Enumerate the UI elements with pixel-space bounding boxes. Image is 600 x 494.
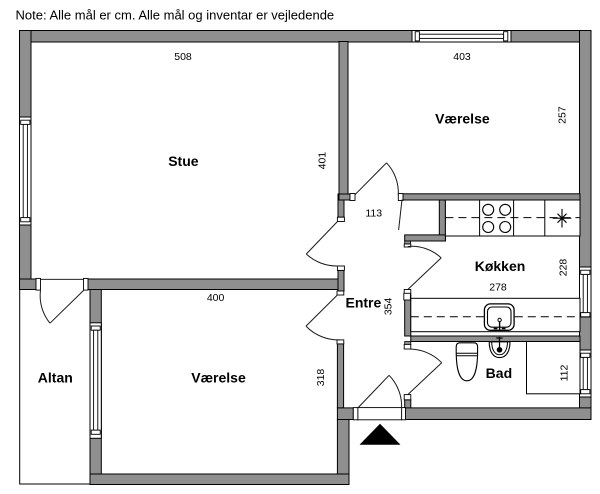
svg-text:278: 278: [489, 281, 507, 293]
svg-text:508: 508: [174, 51, 192, 63]
svg-text:112: 112: [559, 364, 571, 381]
svg-text:Note: Alle mål er cm. Alle mål: Note: Alle mål er cm. Alle mål og invent…: [16, 8, 335, 23]
svg-text:228: 228: [557, 259, 569, 277]
svg-text:403: 403: [453, 51, 471, 63]
svg-text:Stue: Stue: [168, 153, 199, 169]
svg-text:354: 354: [382, 297, 394, 315]
svg-text:400: 400: [207, 292, 225, 304]
svg-text:Altan: Altan: [38, 370, 73, 386]
svg-text:113: 113: [365, 208, 382, 220]
svg-text:401: 401: [316, 152, 328, 170]
svg-text:Køkken: Køkken: [475, 258, 526, 274]
svg-text:Entre: Entre: [346, 295, 382, 311]
svg-text:Værelse: Værelse: [435, 111, 490, 127]
svg-text:Bad: Bad: [486, 365, 512, 381]
svg-text:318: 318: [315, 369, 327, 387]
svg-text:257: 257: [557, 106, 569, 124]
svg-text:Værelse: Værelse: [191, 369, 246, 385]
